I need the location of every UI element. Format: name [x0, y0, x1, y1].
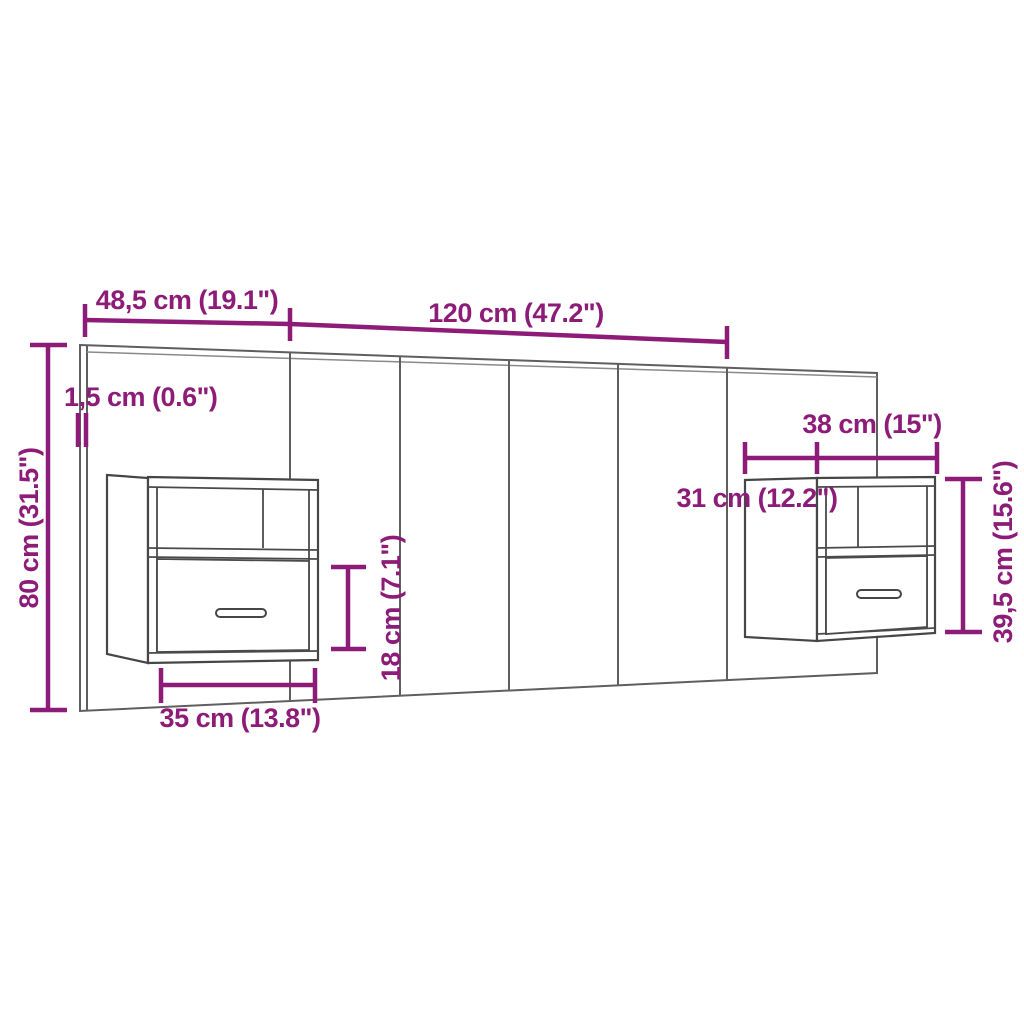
left-cabinet-drawer-front — [157, 559, 309, 652]
label-headboard-height: 80 cm (31.5") — [14, 448, 44, 609]
label-top-middle-width: 120 cm (47.2") — [428, 298, 603, 328]
label-right-cabinet-depth: 31 cm (12.2") — [677, 483, 838, 513]
left-drawer-handle — [216, 609, 266, 617]
left-cabinet — [107, 475, 318, 663]
right-drawer-handle — [857, 590, 901, 598]
label-right-cabinet-width: 38 cm (15") — [802, 409, 941, 439]
dimension-right-cabinet-height — [945, 479, 982, 632]
left-cabinet-side-face — [107, 475, 148, 663]
label-top-left-width: 48,5 cm (19.1") — [96, 285, 278, 315]
dimension-diagram: 48,5 cm (19.1") 120 cm (47.2") 1,5 cm (0… — [0, 0, 1024, 1024]
label-drawer-height: 18 cm (7.1") — [376, 535, 406, 681]
label-right-cabinet-height: 39,5 cm (15.6") — [988, 461, 1018, 643]
label-panel-thickness: 1,5 cm (0.6") — [64, 382, 217, 412]
label-left-cabinet-width: 35 cm (13.8") — [160, 703, 321, 733]
